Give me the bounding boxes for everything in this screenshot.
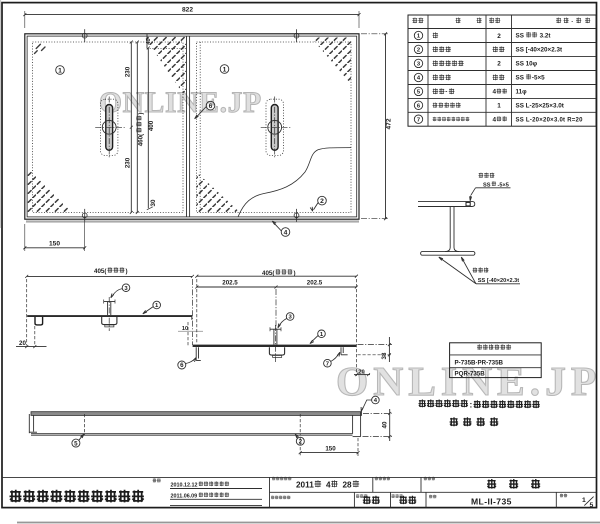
svg-text:SS 10φ: SS 10φ (516, 61, 538, 68)
svg-text:4: 4 (326, 481, 331, 490)
svg-text:SS: SS (516, 33, 524, 40)
svg-text:ML-II-735: ML-II-735 (471, 496, 512, 506)
svg-text:2: 2 (417, 47, 420, 53)
svg-text:230: 230 (124, 157, 131, 168)
svg-text:38: 38 (381, 352, 388, 359)
svg-text:40: 40 (381, 421, 388, 428)
svg-text:4: 4 (284, 229, 288, 236)
svg-text:-5×5: -5×5 (532, 75, 545, 82)
svg-text:2010.12.12: 2010.12.12 (171, 482, 198, 488)
svg-text:202.5: 202.5 (307, 279, 323, 286)
svg-text:4: 4 (493, 117, 497, 124)
svg-text:472: 472 (386, 118, 393, 129)
svg-text:1: 1 (58, 67, 62, 74)
svg-text:·: · (571, 19, 573, 26)
svg-text:7: 7 (417, 117, 420, 123)
svg-text:460(: 460( (138, 133, 145, 146)
svg-text:2: 2 (299, 438, 303, 445)
svg-text:5: 5 (590, 502, 594, 509)
svg-text:2: 2 (497, 33, 501, 40)
svg-text:ONLINE.JP: ONLINE.JP (99, 87, 262, 119)
svg-text:4: 4 (493, 89, 497, 96)
svg-text:SS L-20×20×3.0t R=20: SS L-20×20×3.0t R=20 (516, 117, 584, 123)
svg-text:405(: 405( (94, 268, 107, 275)
svg-text:-: - (445, 89, 447, 96)
svg-text:150: 150 (49, 241, 60, 248)
svg-text:SS [-40×20×2.3t: SS [-40×20×2.3t (478, 278, 519, 284)
svg-text:4: 4 (417, 76, 421, 82)
svg-text:6: 6 (417, 103, 421, 109)
svg-text:2011: 2011 (296, 481, 314, 490)
svg-text:5: 5 (417, 89, 421, 95)
svg-text:): ) (126, 268, 128, 275)
svg-text:2: 2 (497, 61, 501, 68)
svg-text:1: 1 (582, 497, 586, 504)
svg-text:SS L-25×25×3.0t: SS L-25×25×3.0t (516, 103, 565, 110)
svg-text:SS [-40×20×2.3t: SS [-40×20×2.3t (516, 47, 563, 54)
svg-text:1: 1 (417, 34, 421, 40)
svg-text:2011.06.09: 2011.06.09 (171, 493, 198, 499)
svg-text:30: 30 (150, 199, 157, 206)
svg-text:1: 1 (223, 66, 227, 73)
svg-text:P-735B·PR-735B: P-735B·PR-735B (455, 360, 504, 367)
svg-text:SS: SS (516, 75, 524, 82)
svg-text:PQR-735B: PQR-735B (455, 370, 486, 377)
svg-text:3.2t: 3.2t (538, 33, 552, 40)
svg-text:6: 6 (209, 103, 213, 110)
svg-text:3: 3 (417, 61, 421, 67)
svg-text:230: 230 (124, 66, 131, 77)
svg-text:): ) (138, 113, 145, 115)
svg-text:2: 2 (320, 198, 324, 205)
svg-text:6: 6 (180, 362, 184, 369)
svg-text:5: 5 (74, 440, 78, 447)
svg-text:400: 400 (148, 120, 155, 131)
svg-text:150: 150 (325, 445, 336, 452)
svg-text:202.5: 202.5 (222, 279, 238, 286)
svg-text:20: 20 (19, 340, 26, 347)
svg-text::: : (470, 399, 473, 409)
svg-text:1: 1 (497, 103, 501, 110)
svg-text:28: 28 (343, 481, 353, 490)
svg-text:822: 822 (182, 6, 193, 13)
svg-text:11φ: 11φ (516, 89, 528, 96)
